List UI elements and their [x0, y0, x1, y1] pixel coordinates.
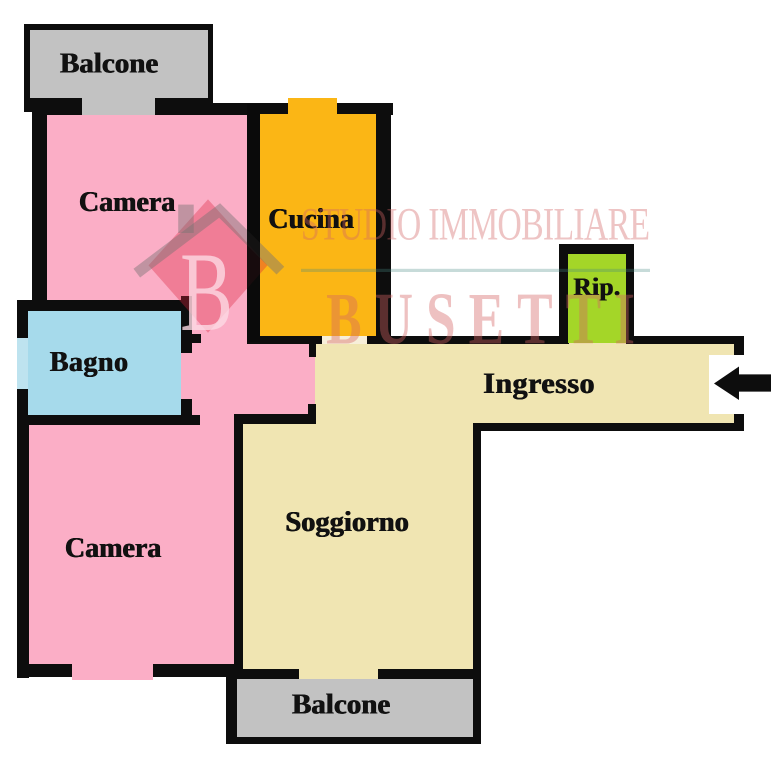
svg-text:B: B	[180, 230, 233, 355]
svg-text:BUSETTI: BUSETTI	[326, 278, 635, 359]
svg-text:STUDIO IMMOBILIARE: STUDIO IMMOBILIARE	[301, 198, 650, 250]
